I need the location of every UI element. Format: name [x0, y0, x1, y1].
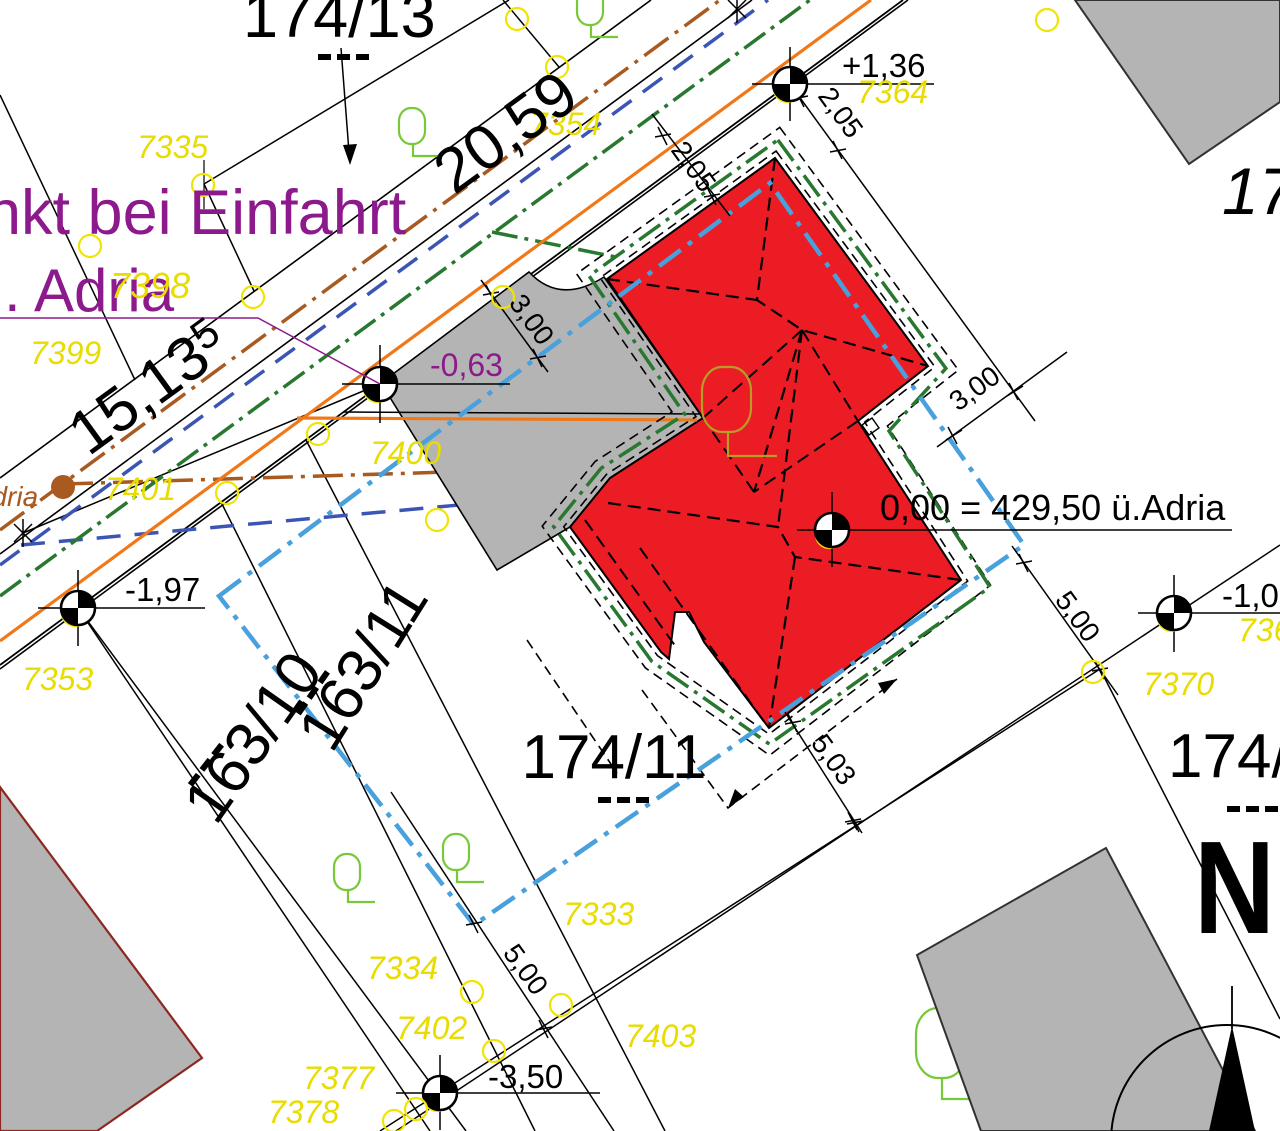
svg-text:174/2: 174/2 [1168, 722, 1280, 791]
svg-text:7353: 7353 [22, 661, 93, 697]
svg-text:7378: 7378 [268, 1094, 339, 1130]
svg-text:7399: 7399 [30, 335, 101, 371]
svg-text:7398: 7398 [110, 265, 190, 306]
svg-text:7377: 7377 [303, 1060, 375, 1096]
svg-text:-1,0: -1,0 [1222, 577, 1279, 614]
svg-text:-0,63: -0,63 [430, 347, 503, 383]
svg-text:736: 736 [1238, 612, 1280, 648]
svg-text:7333: 7333 [563, 896, 634, 932]
svg-text:174/11: 174/11 [521, 723, 706, 792]
svg-text:.Adria: .Adria [0, 481, 38, 512]
svg-text:7401: 7401 [105, 471, 176, 507]
svg-text:7400: 7400 [370, 435, 441, 471]
svg-text:7402: 7402 [396, 1010, 467, 1046]
svg-text:7364: 7364 [857, 74, 928, 110]
svg-text:7403: 7403 [625, 1018, 696, 1054]
svg-text:7335: 7335 [137, 129, 208, 165]
svg-text:7370: 7370 [1143, 666, 1214, 702]
svg-text:-3,50: -3,50 [488, 1058, 563, 1095]
svg-text:N: N [1194, 813, 1275, 961]
svg-text:174/13: 174/13 [243, 0, 436, 51]
svg-text:7334: 7334 [367, 950, 438, 986]
svg-text:nkt bei Einfahrt: nkt bei Einfahrt [0, 178, 407, 248]
svg-text:-1,97: -1,97 [125, 571, 200, 608]
svg-text:0,00 = 429,50 ü.Adria: 0,00 = 429,50 ü.Adria [880, 487, 1226, 528]
svg-text:174: 174 [1222, 154, 1280, 228]
